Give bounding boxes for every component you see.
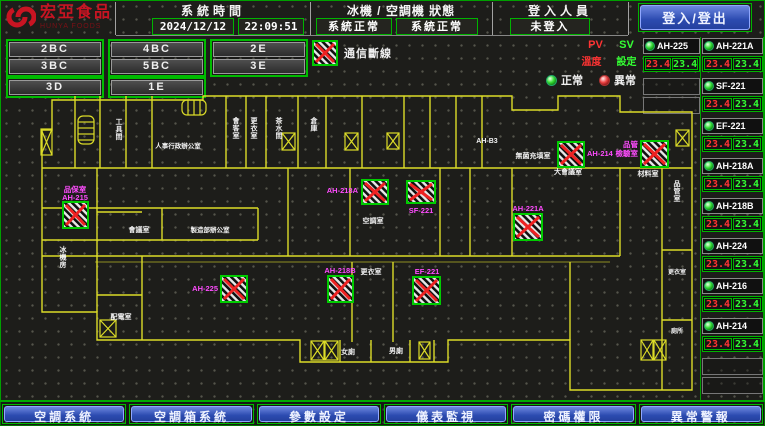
floor-button-4bc[interactable]: 4BC	[111, 42, 203, 57]
room-label: 更衣室	[361, 267, 382, 276]
ahu-marker-label: 檢驗室	[616, 148, 639, 158]
pv-value: 23.4	[704, 138, 732, 150]
shaft-icon	[100, 320, 116, 337]
equipment-unit-AH-216: AH-21623.423.4	[702, 278, 763, 312]
status-led-icon	[704, 81, 714, 91]
shaft-icon	[345, 133, 358, 150]
comm-lost-icon	[312, 40, 338, 66]
temp-label: 溫度	[582, 53, 602, 68]
room-label: 無菌充填室	[516, 151, 551, 160]
room-label: 更衣室	[251, 117, 259, 140]
equipment-tile-AH-214[interactable]: AH-214	[702, 318, 763, 334]
ahu-status-display: 系統正常	[396, 18, 478, 35]
room-label: 倉庫	[310, 116, 319, 133]
equipment-values-AH-218A: 23.423.4	[702, 176, 763, 192]
nav-frame-3: 參數設定	[257, 404, 381, 424]
shaft-icon	[654, 340, 666, 360]
equipment-tile-AH-218B[interactable]: AH-218B	[702, 198, 763, 214]
room-label: 配電室	[111, 312, 132, 321]
header: 宏亞食品 HUNYA FOODS 系統時間 2024/12/12 22:09:5…	[0, 0, 765, 37]
ahu-marker-label: 品管	[623, 139, 638, 149]
system-time-display: 22:09:51	[238, 18, 304, 35]
equipment-name: AH-225	[657, 41, 688, 51]
equipment-unit-AH-218B: AH-218B23.423.4	[702, 198, 763, 232]
pv-value: 23.4	[704, 258, 732, 270]
sv-value: 23.4	[733, 258, 761, 270]
ahu-marker-AH-218B[interactable]: AH-218B	[324, 266, 356, 302]
pv-value: 23.4	[704, 298, 732, 310]
login-user-label: 登入人員	[494, 2, 626, 19]
hmi-screen: 宏亞食品 HUNYA FOODS 系統時間 2024/12/12 22:09:5…	[0, 0, 765, 426]
equipment-unit-AH-221A: AH-221A23.423.4	[702, 38, 763, 72]
floor-plan: 品保室AH-215AH-225AH-218BEF-221AH-218ASF-22…	[0, 90, 702, 400]
equipment-tile-AH-224[interactable]: AH-224	[702, 238, 763, 254]
pv-value: 23.4	[704, 218, 732, 230]
abnormal-label: 異常	[614, 72, 636, 88]
status-led-icon	[704, 321, 714, 331]
nav-button-6[interactable]: 異常警報	[641, 406, 761, 422]
equipment-tile-AH-218A[interactable]: AH-218A	[702, 158, 763, 174]
bottom-nav: 空調系統空調箱系統參數設定儀表監視密碼權限異常警報	[0, 400, 765, 426]
equipment-name: AH-216	[716, 281, 747, 291]
equipment-column-2: AH-221A23.423.4SF-22123.423.4EF-22123.42…	[702, 38, 763, 396]
nav-frame-6: 異常警報	[639, 404, 763, 424]
logo-subtitle: HUNYA FOODS	[40, 23, 112, 30]
floor-button-3e[interactable]: 3E	[213, 59, 305, 74]
ahu-marker-AH-215[interactable]: 品保室AH-215	[62, 184, 88, 228]
ahu-marker-SF-221[interactable]: SF-221	[407, 181, 435, 215]
sv-value: 23.4	[672, 58, 698, 70]
floor-group-1: 2BC3BC	[6, 39, 104, 77]
room-label: 女廁	[341, 347, 355, 356]
status-led-icon	[645, 41, 655, 51]
shaft-icon	[325, 341, 338, 360]
equipment-tile-SF-221[interactable]: SF-221	[702, 78, 763, 94]
nav-frame-4: 儀表監視	[384, 404, 508, 424]
ahu-marker-label: AH-225	[192, 284, 218, 293]
room-label: 更衣室	[668, 268, 686, 276]
equipment-values-AH-216: 23.423.4	[702, 296, 763, 312]
room-label: 會議室	[129, 225, 150, 234]
equipment-values-EF-221: 23.423.4	[702, 136, 763, 152]
ahu-marker-label: EF-221	[415, 267, 440, 276]
shaft-icon	[676, 130, 689, 146]
room-label: 空調室	[363, 216, 384, 225]
nav-button-5[interactable]: 密碼權限	[513, 406, 633, 422]
nav-button-3[interactable]: 參數設定	[259, 406, 379, 422]
equipment-name: AH-214	[716, 321, 747, 331]
nav-button-2[interactable]: 空調箱系統	[131, 406, 251, 422]
logo: 宏亞食品 HUNYA FOODS	[6, 2, 112, 32]
sv-value: 23.4	[733, 178, 761, 190]
room-label: 廁所	[671, 327, 683, 335]
status-led-icon	[704, 201, 714, 211]
pv-sv-header: PV SV	[580, 39, 642, 51]
company-logo-icon	[6, 2, 36, 32]
empty-slot	[702, 377, 763, 394]
nav-button-1[interactable]: 空調系統	[4, 406, 124, 422]
stairs-icon	[78, 116, 94, 144]
pv-value: 23.4	[704, 98, 732, 110]
pv-value: 23.4	[704, 338, 732, 350]
room-label: 冰機房	[60, 245, 68, 269]
room-label: 人事行政辦公室	[155, 141, 201, 150]
status-led-icon	[704, 161, 714, 171]
stairs-icon	[182, 100, 206, 115]
equipment-values-AH-225: 23.423.4	[643, 56, 700, 72]
shaft-icon	[387, 133, 399, 149]
floor-group-3: 2E3E	[210, 39, 308, 77]
shaft-icon	[311, 341, 324, 360]
ahu-marker-AH-214[interactable]: AH-214	[558, 142, 614, 167]
equipment-tile-AH-225[interactable]: AH-225	[643, 38, 700, 54]
sv-value: 23.4	[733, 218, 761, 230]
login-logout-button[interactable]: 登入/登出	[640, 5, 750, 30]
equipment-name: AH-218A	[716, 161, 754, 171]
ahu-marker-label: AH-218A	[327, 186, 359, 195]
machine-status-label: 冰機 / 空調機 狀態	[312, 2, 490, 19]
room-label: 會客室	[232, 116, 241, 140]
system-date-display: 2024/12/12	[152, 18, 234, 35]
empty-slot	[702, 358, 763, 375]
equipment-tile-EF-221[interactable]: EF-221	[702, 118, 763, 134]
equipment-values-SF-221: 23.423.4	[702, 96, 763, 112]
equipment-values-AH-224: 23.423.4	[702, 256, 763, 272]
ahu-marker-label: AH-214	[587, 149, 614, 158]
equipment-values-AH-214: 23.423.4	[702, 336, 763, 352]
pv-value: 23.4	[645, 58, 671, 70]
login-button-frame: 登入/登出	[638, 3, 752, 32]
sv-value: 23.4	[733, 98, 761, 110]
room-label: 製造部辦公室	[190, 225, 231, 234]
status-led-icon	[704, 241, 714, 251]
normal-led-icon	[546, 75, 557, 86]
system-time-label: 系統時間	[118, 2, 308, 19]
temp-set-header: 溫度 設定	[574, 53, 644, 68]
equipment-name: AH-221A	[716, 41, 754, 51]
normal-legend: 正常	[546, 72, 583, 88]
floor-group-2: 4BC5BC	[108, 39, 206, 77]
comm-lost-label: 通信斷線	[344, 45, 392, 61]
ahu-marker-AH-221A[interactable]: AH-221A	[512, 204, 544, 240]
normal-label: 正常	[561, 72, 583, 88]
ahu-marker-label: SF-221	[409, 206, 434, 215]
nav-frame-5: 密碼權限	[511, 404, 635, 424]
ahu-marker-AH-225[interactable]: AH-225	[192, 276, 247, 302]
plan-walls	[42, 96, 692, 390]
ahu-marker-label: AH-218B	[324, 266, 356, 275]
comm-lost-legend: 通信斷線	[312, 40, 392, 66]
nav-frame-1: 空調系統	[2, 404, 126, 424]
nav-frame-2: 空調箱系統	[129, 404, 253, 424]
room-label: 大會議室	[554, 167, 582, 176]
login-status-display: 未登入	[510, 18, 590, 35]
room-label: 工具間	[115, 118, 123, 141]
ahu-marker-EF-221[interactable]: EF-221	[413, 267, 440, 304]
equipment-name: SF-221	[716, 81, 746, 91]
sv-value: 23.4	[733, 58, 761, 70]
room-label: 品管室	[674, 179, 681, 203]
equipment-unit-AH-224: AH-22423.423.4	[702, 238, 763, 272]
shaft-icon	[641, 340, 653, 360]
equipment-unit-SF-221: SF-22123.423.4	[702, 78, 763, 112]
shaft-icon	[419, 342, 430, 359]
shaft-icon	[282, 133, 295, 150]
status-led-icon	[704, 41, 714, 51]
status-led-icon	[704, 121, 714, 131]
floor-button-2bc[interactable]: 2BC	[9, 42, 101, 57]
set-label: 設定	[617, 53, 637, 68]
ahu-marker-label: AH-215	[62, 193, 88, 202]
sv-value: 23.4	[733, 298, 761, 310]
equipment-values-AH-221A: 23.423.4	[702, 56, 763, 72]
equipment-tile-AH-216[interactable]: AH-216	[702, 278, 763, 294]
sv-value: 23.4	[733, 338, 761, 350]
floor-button-3bc[interactable]: 3BC	[9, 59, 101, 74]
room-label: 茶水間	[275, 116, 284, 140]
pv-label: PV	[588, 39, 603, 51]
chiller-status-display: 系統正常	[316, 18, 392, 35]
room-label: AH-B3	[476, 138, 497, 145]
room-label: 男廁	[389, 346, 403, 355]
equipment-tile-AH-221A[interactable]: AH-221A	[702, 38, 763, 54]
sv-label: SV	[619, 39, 634, 51]
floor-button-2e[interactable]: 2E	[213, 42, 305, 57]
equipment-values-AH-218B: 23.423.4	[702, 216, 763, 232]
abnormal-led-icon	[599, 75, 610, 86]
equipment-unit-AH-218A: AH-218A23.423.4	[702, 158, 763, 192]
ahu-marker-label: AH-221A	[512, 204, 544, 213]
pv-value: 23.4	[704, 58, 732, 70]
pv-value: 23.4	[704, 178, 732, 190]
equipment-unit-AH-214: AH-21423.423.4	[702, 318, 763, 352]
equipment-unit-EF-221: EF-22123.423.4	[702, 118, 763, 152]
abnormal-legend: 異常	[599, 72, 636, 88]
equipment-name: EF-221	[716, 121, 746, 131]
ahu-marker-AH-216[interactable]: 品管檢驗室	[616, 139, 669, 167]
logo-title: 宏亞食品	[40, 5, 112, 21]
equipment-unit-AH-225: AH-22523.423.4	[643, 38, 700, 72]
sv-value: 23.4	[733, 138, 761, 150]
equipment-name: AH-218B	[716, 201, 754, 211]
floor-button-5bc[interactable]: 5BC	[111, 59, 203, 74]
room-label: 材料室	[637, 169, 659, 178]
equipment-name: AH-224	[716, 241, 747, 251]
ahu-marker-AH-218A[interactable]: AH-218A	[327, 180, 388, 204]
nav-button-4[interactable]: 儀表監視	[386, 406, 506, 422]
status-led-icon	[704, 281, 714, 291]
